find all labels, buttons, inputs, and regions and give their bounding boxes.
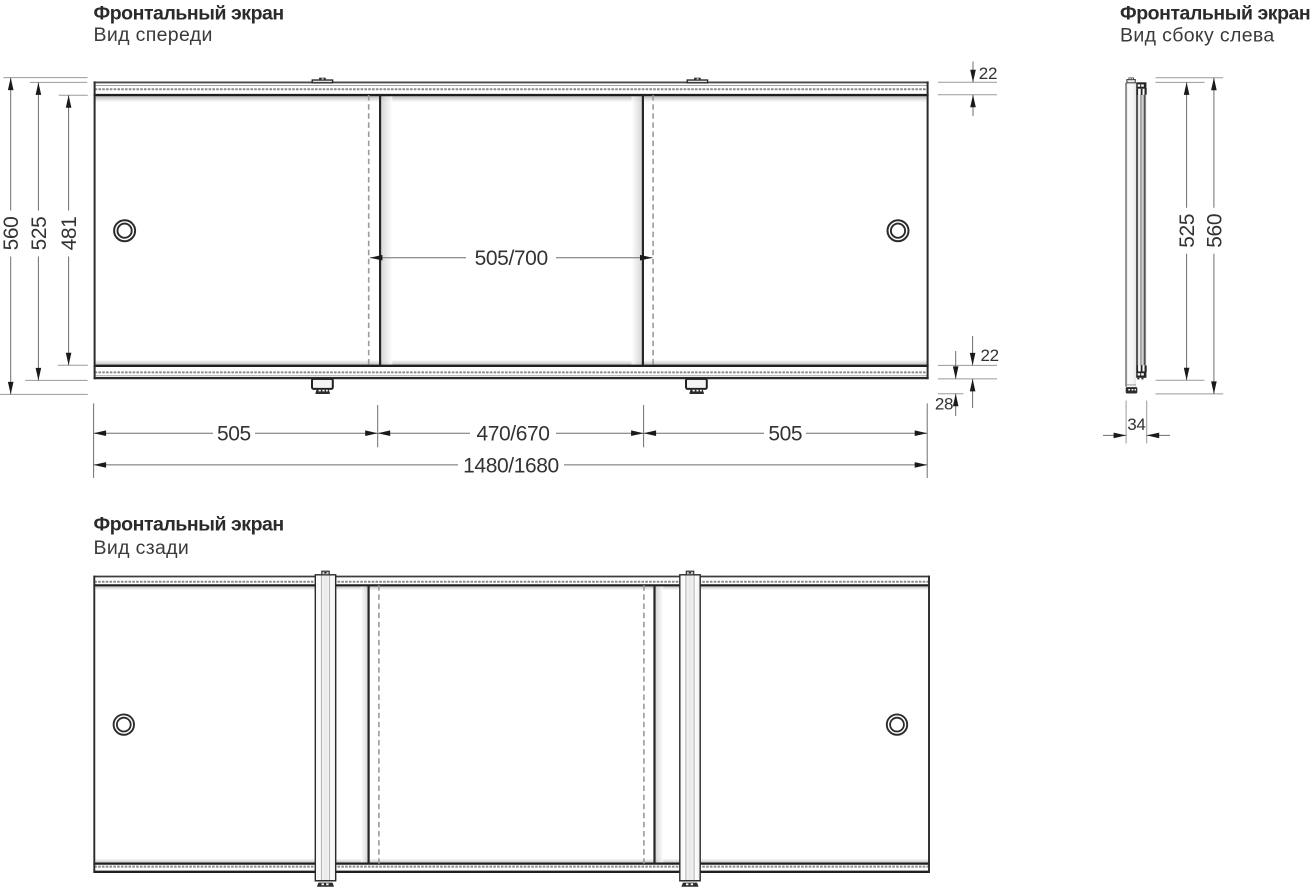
svg-text:Вид сзади: Вид сзади [94,537,190,559]
svg-text:470/670: 470/670 [476,423,549,446]
svg-text:525: 525 [1176,214,1199,248]
svg-text:Вид спереди: Вид спереди [94,24,213,46]
svg-text:22: 22 [979,64,997,83]
svg-text:505: 505 [768,423,802,446]
svg-text:505/700: 505/700 [475,247,548,270]
svg-text:Вид сбоку слева: Вид сбоку слева [1120,25,1275,47]
svg-text:560: 560 [1203,214,1226,248]
svg-text:505: 505 [217,423,251,446]
svg-text:34: 34 [1127,415,1145,434]
svg-text:Фронтальный экран: Фронтальный экран [94,2,284,24]
svg-text:481: 481 [58,217,81,251]
svg-text:Фронтальный экран: Фронтальный экран [94,514,284,536]
svg-text:525: 525 [28,217,51,251]
svg-text:1480/1680: 1480/1680 [463,454,559,477]
svg-text:22: 22 [981,346,999,365]
svg-text:28: 28 [935,395,953,414]
svg-text:560: 560 [0,217,23,251]
svg-text:Фронтальный экран: Фронтальный экран [1120,2,1310,24]
